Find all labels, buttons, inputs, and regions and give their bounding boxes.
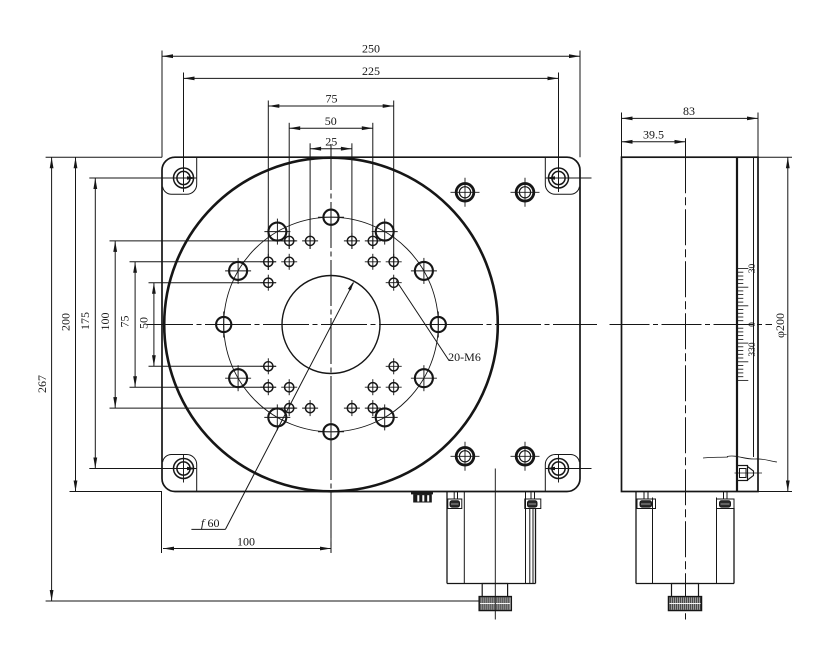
svg-text:75: 75 <box>326 92 338 106</box>
svg-text:39.5: 39.5 <box>643 128 664 142</box>
svg-text:50: 50 <box>136 317 150 329</box>
svg-text:50: 50 <box>325 114 337 128</box>
svg-text:0: 0 <box>748 322 758 327</box>
svg-text:250: 250 <box>362 42 380 56</box>
svg-text:100: 100 <box>237 534 255 548</box>
svg-text:φ200: φ200 <box>773 313 787 338</box>
svg-text:100: 100 <box>98 313 112 331</box>
svg-text:267: 267 <box>35 375 49 393</box>
svg-text:83: 83 <box>683 104 695 118</box>
svg-text:25: 25 <box>325 134 337 148</box>
svg-text:225: 225 <box>362 64 380 78</box>
svg-text:75: 75 <box>118 316 132 328</box>
svg-text:330: 330 <box>748 342 758 357</box>
svg-text:60: 60 <box>208 516 220 530</box>
svg-text:175: 175 <box>78 312 92 330</box>
svg-text:200: 200 <box>58 313 72 331</box>
svg-text:20-M6: 20-M6 <box>448 350 481 364</box>
svg-text:30: 30 <box>748 264 758 274</box>
